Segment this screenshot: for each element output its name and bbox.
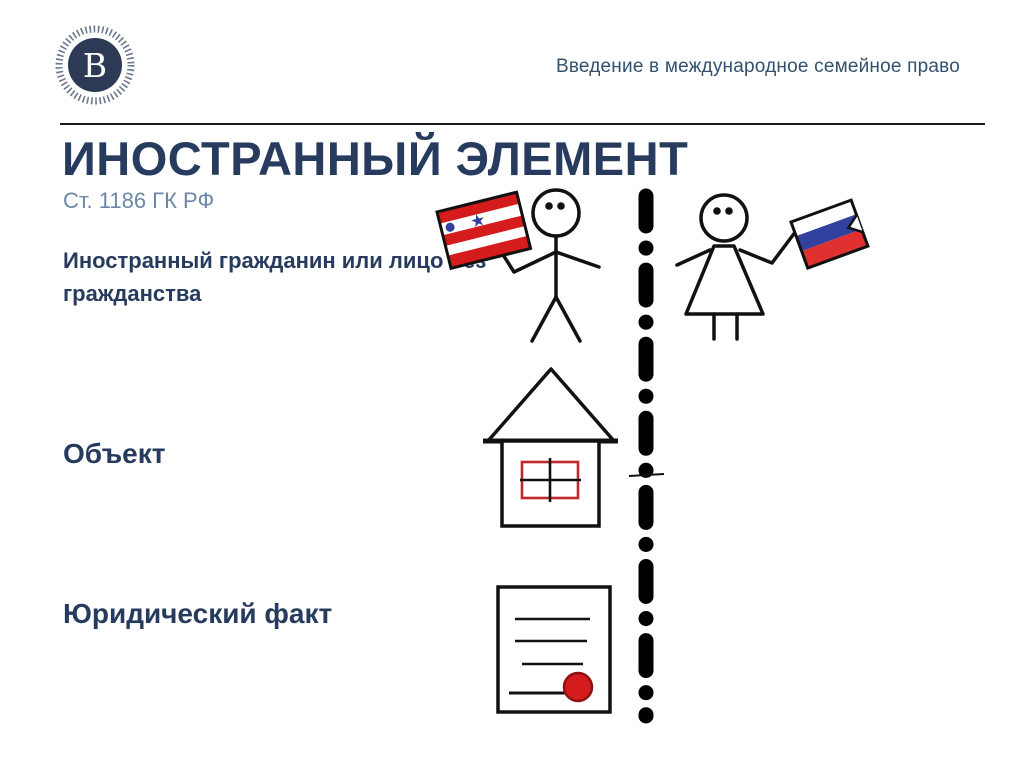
woman-left-eye [713, 207, 721, 215]
striped-flag-icon: ★ [437, 192, 531, 272]
slide-illustrations: ★ [0, 0, 1024, 768]
red-seal [564, 673, 592, 701]
stick-woman-figure [677, 195, 772, 339]
man-left-eye [545, 202, 553, 210]
man-right-eye [557, 202, 565, 210]
stick-man-figure [514, 190, 599, 341]
document-seal-icon [498, 587, 610, 712]
woman-right-eye [725, 207, 733, 215]
house-icon [483, 369, 618, 526]
russian-flag-icon [772, 200, 868, 268]
dash-dot-divider-line [629, 196, 664, 716]
